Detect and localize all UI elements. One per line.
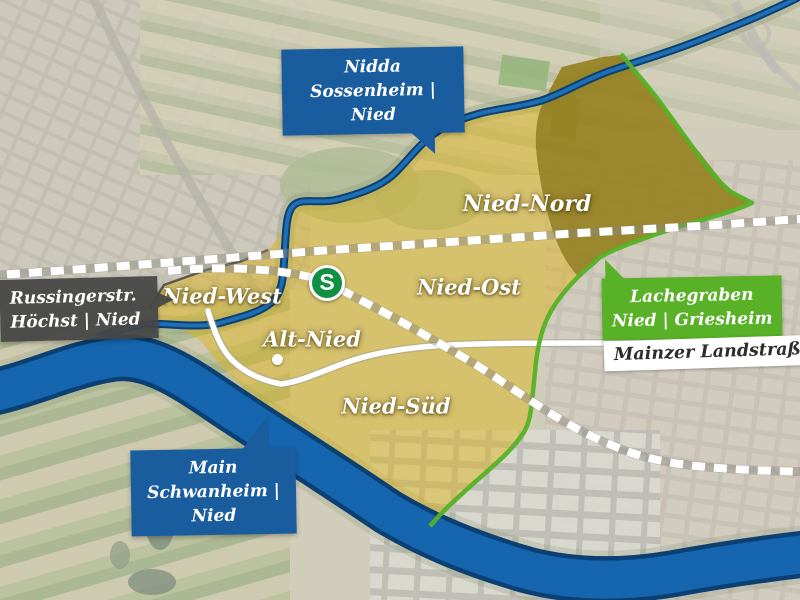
callout-russingerstrasse-pointer — [157, 292, 174, 308]
callout-nidda: Nidda Sossenheim | Nied — [281, 46, 464, 136]
callout-lachegraben-pointer — [605, 259, 624, 279]
callout-lachegraben: Lachegraben Nied | Griesheim — [601, 275, 782, 340]
callout-main-river-subtitle: Schwanheim | Nied — [137, 479, 291, 530]
map-canvas: Nidda Sossenheim | Nied Russingerstr. Hö… — [0, 0, 800, 600]
callout-main-river-title: Main — [136, 455, 289, 482]
callout-russingerstrasse-subtitle: Höchst | Nied — [10, 307, 153, 335]
callout-nidda-pointer — [411, 132, 435, 154]
callout-lachegraben-subtitle: Nied | Griesheim — [608, 307, 776, 334]
alt-nied-point-marker — [272, 354, 283, 365]
district-label-nied-nord: Nied-Nord — [463, 191, 592, 217]
district-label-alt-nied: Alt-Nied — [263, 327, 361, 352]
callout-nidda-title: Nidda — [287, 54, 457, 81]
district-label-nied-west: Nied-West — [162, 284, 282, 309]
district-label-nied-ost: Nied-Ost — [417, 275, 521, 300]
callout-russingerstrasse: Russingerstr. Höchst | Nied — [0, 276, 159, 342]
sbahn-station-icon: S — [309, 265, 345, 301]
callout-nidda-subtitle: Sossenheim | Nied — [288, 78, 459, 129]
district-label-nied-sued: Nied-Süd — [341, 394, 450, 419]
callout-lachegraben-title: Lachegraben — [608, 283, 776, 310]
callout-main-river-pointer — [242, 414, 270, 449]
callout-main-river: Main Schwanheim | Nied — [130, 448, 296, 537]
street-label-mainzer-landstrasse: Mainzer Landstraße — [604, 335, 800, 372]
